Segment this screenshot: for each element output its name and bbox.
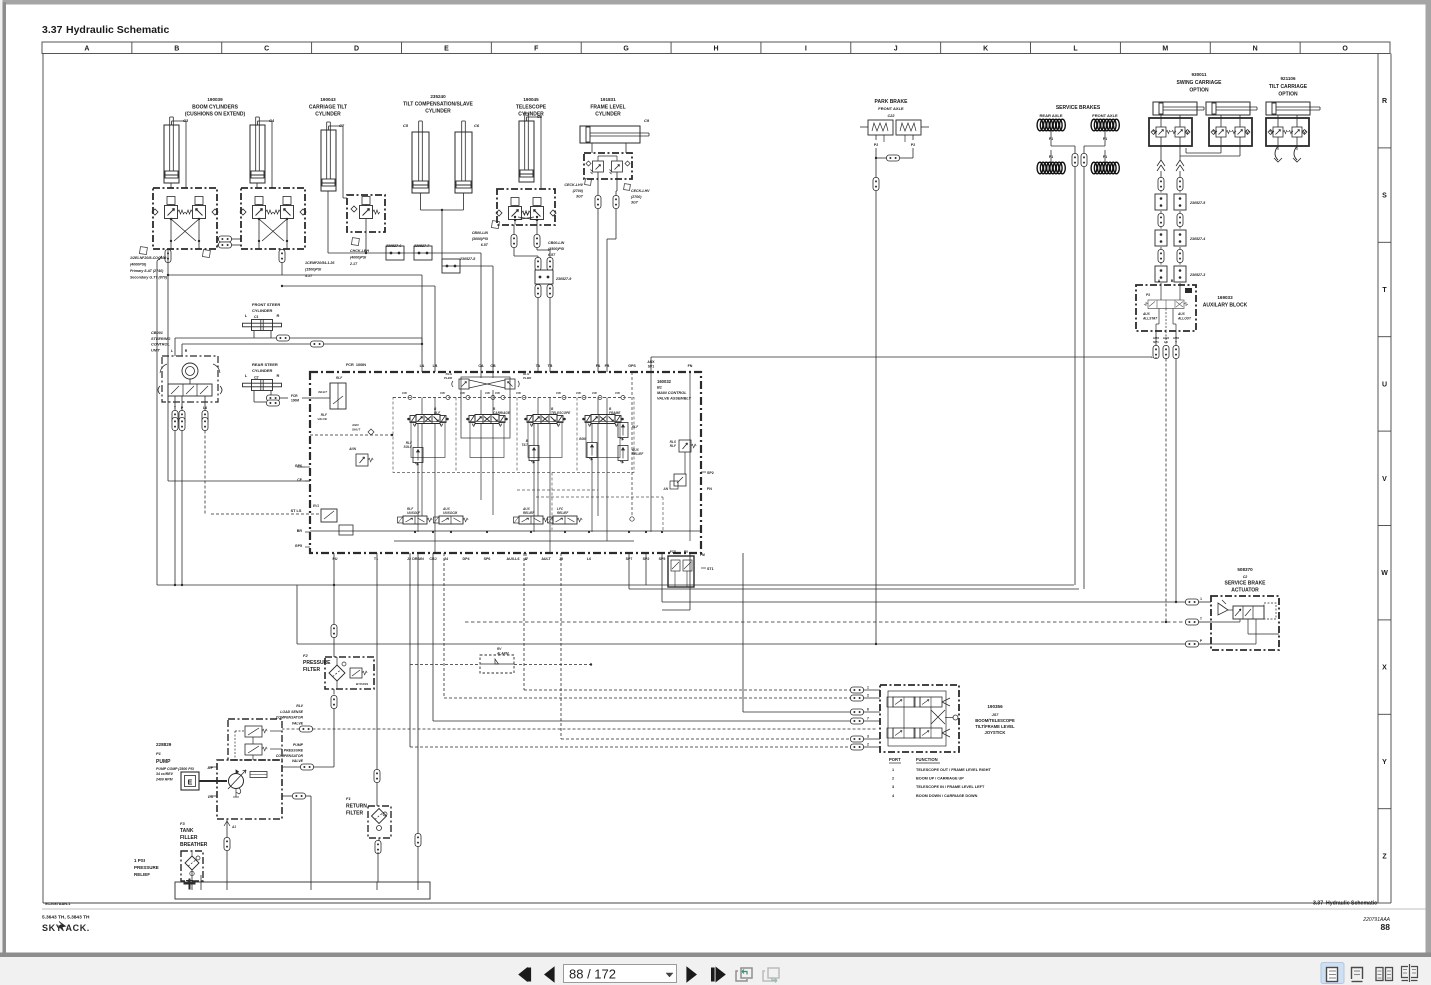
svg-text:BREATHER: BREATHER [180, 842, 208, 848]
svg-text:OPTION: OPTION [1278, 92, 1298, 98]
svg-text:T: T [1200, 617, 1202, 621]
svg-text:AUX: AUX [1177, 312, 1186, 316]
svg-text:PUMP: PUMP [156, 759, 171, 765]
svg-text:P2: P2 [911, 143, 915, 147]
svg-text:PRESSURE: PRESSURE [303, 660, 331, 666]
svg-text:FCR: FCR [291, 394, 298, 398]
svg-text:3GT: 3GT [631, 201, 639, 205]
svg-text:230527-9: 230527-9 [555, 277, 571, 281]
svg-text:L/S: L/S [208, 795, 214, 799]
svg-text:ST1: ST1 [707, 567, 714, 571]
svg-text:AN: AN [662, 487, 668, 491]
svg-text:PLBR: PLBR [523, 376, 532, 380]
svg-text:UNIT: UNIT [151, 348, 161, 352]
svg-text:JOYSTICK: JOYSTICK [985, 730, 1006, 735]
svg-text:1 PSI: 1 PSI [134, 858, 145, 863]
svg-text:(4000PSI): (4000PSI) [130, 263, 147, 267]
svg-text:CB00-LIN: CB00-LIN [548, 241, 565, 245]
svg-text:L6: L6 [203, 406, 207, 410]
svg-text:RELIEF: RELIEF [557, 511, 569, 515]
svg-text:BR: BR [297, 529, 303, 533]
svg-text:PRESSURE: PRESSURE [134, 865, 159, 870]
svg-text:I: I [805, 46, 807, 53]
svg-text:BOOM CYLINDERS: BOOM CYLINDERS [192, 105, 239, 111]
svg-text:3.37: 3.37 [42, 24, 63, 36]
svg-text:S: S [1382, 193, 1387, 200]
svg-text:FRONT AXLE: FRONT AXLE [1092, 113, 1118, 118]
svg-text:TELESCOPE: TELESCOPE [516, 105, 547, 111]
svg-text:230527-5: 230527-5 [1189, 201, 1206, 205]
svg-text:UNSOLF: UNSOLF [407, 511, 421, 515]
svg-text:A/P: A/P [207, 766, 213, 770]
svg-text:ACK.: ACK. [66, 923, 90, 933]
svg-text:REAR AXLE: REAR AXLE [1040, 113, 1063, 118]
svg-text:SP6: SP6 [484, 557, 491, 561]
svg-text:C5: C5 [403, 123, 409, 128]
svg-text:ACTUATOR: ACTUATOR [1231, 588, 1259, 594]
svg-text:1: 1 [867, 686, 869, 690]
svg-text:190356: 190356 [987, 704, 1003, 709]
svg-text:230527-8: 230527-8 [459, 257, 475, 261]
svg-text:ANN: ANN [348, 447, 357, 451]
svg-text:2400 RPM: 2400 RPM [155, 777, 173, 781]
svg-text:P1: P1 [156, 751, 162, 756]
svg-text:C22: C22 [888, 114, 896, 118]
svg-text:C9: C9 [644, 118, 650, 123]
svg-text:T: T [1175, 340, 1177, 344]
svg-text:5.3643 TH, 5.3843 TH: 5.3643 TH, 5.3843 TH [42, 915, 90, 921]
svg-text:2.1T: 2.1T [349, 262, 358, 266]
svg-text:6.5T: 6.5T [548, 253, 556, 257]
svg-text:N: N [1253, 46, 1258, 53]
svg-text:P2: P2 [874, 143, 878, 147]
svg-text:RLF: RLF [632, 425, 639, 429]
svg-text:CARRIAGE: CARRIAGE [493, 411, 511, 415]
svg-text:SP2: SP2 [707, 471, 714, 475]
svg-text:VALVE: VALVE [292, 759, 304, 763]
svg-text:SKY: SKY [42, 923, 62, 933]
svg-text:H: H [713, 46, 718, 53]
svg-text:CECK-LHV: CECK-LHV [631, 189, 650, 193]
svg-text:U: U [1382, 381, 1387, 388]
svg-text:ALARM: ALARM [496, 652, 509, 656]
svg-text:TILT/FRAME LEVEL: TILT/FRAME LEVEL [975, 724, 1015, 729]
svg-text:FILTER: FILTER [346, 811, 364, 817]
svg-text:A: A [84, 46, 89, 53]
svg-text:R: R [1382, 98, 1387, 105]
svg-text:RLV: RLV [296, 704, 303, 708]
svg-text:1: 1 [1200, 597, 1202, 601]
svg-text:AUX: AUX [647, 360, 655, 364]
svg-text:ANN: ANN [351, 423, 359, 427]
svg-text:190039: 190039 [207, 97, 223, 102]
svg-text:RELIEF: RELIEF [134, 872, 150, 877]
svg-text:2: 2 [867, 694, 869, 698]
svg-text:FUNCTION: FUNCTION [916, 757, 938, 762]
svg-text:FILLER: FILLER [180, 835, 198, 841]
svg-text:(2700): (2700) [573, 189, 584, 193]
svg-text:PRESSURE: PRESSURE [284, 748, 304, 752]
svg-text:PORT: PORT [889, 757, 901, 762]
svg-text:FILTER: FILTER [303, 667, 321, 673]
svg-text:TILT: TILT [522, 443, 530, 447]
svg-text:C7: C7 [339, 123, 345, 128]
svg-text:508370: 508370 [1237, 567, 1253, 572]
svg-text:TILT CARRIAGE: TILT CARRIAGE [1269, 84, 1308, 90]
svg-text:FRAME: FRAME [609, 411, 621, 415]
svg-text:6: 6 [867, 708, 869, 712]
svg-text:230527-4: 230527-4 [1189, 237, 1205, 241]
svg-text:F1: F1 [346, 796, 351, 801]
svg-text:6.5T: 6.5T [481, 243, 489, 247]
svg-text:RELIEF: RELIEF [632, 452, 644, 456]
svg-text:CECK-LHV: CECK-LHV [564, 183, 583, 187]
svg-text:235240: 235240 [430, 94, 446, 99]
svg-text:2: 2 [892, 777, 894, 781]
svg-text:O: O [1342, 46, 1348, 53]
svg-text:COMPENSATOR: COMPENSATOR [276, 754, 304, 758]
svg-text:SWING CARRIAGE: SWING CARRIAGE [1177, 80, 1223, 86]
svg-text:J: J [894, 46, 898, 53]
svg-text:AUX-L6: AUX-L6 [507, 557, 520, 561]
svg-text:PUMP: PUMP [293, 743, 304, 747]
svg-text:CYLINDER: CYLINDER [315, 112, 341, 118]
svg-text:RELIEF: RELIEF [523, 511, 535, 515]
svg-text:3: 3 [867, 735, 869, 739]
svg-text:CYLINDER: CYLINDER [252, 368, 273, 373]
svg-text:R: R [277, 373, 280, 378]
svg-text:CARRIAGE TILT: CARRIAGE TILT [309, 105, 347, 111]
svg-text:100M: 100M [291, 399, 299, 403]
svg-text:SC2087AAN-1: SC2087AAN-1 [45, 902, 70, 906]
svg-text:TILT COMPENSATION/SLAVE: TILT COMPENSATION/SLAVE [403, 102, 473, 108]
svg-text:P3: P3 [1146, 293, 1150, 297]
svg-text:VALVE: VALVE [292, 721, 304, 725]
svg-text:PUMP COMP (2500 PSI: PUMP COMP (2500 PSI [156, 767, 195, 771]
svg-text:C: C [264, 46, 269, 53]
svg-text:X: X [1382, 665, 1387, 672]
svg-text:D: D [354, 46, 359, 53]
svg-text:SP1: SP1 [1153, 340, 1159, 344]
svg-text:(CUSHIONS ON EXTEND): (CUSHIONS ON EXTEND) [185, 112, 246, 118]
svg-text:SP1: SP1 [648, 365, 655, 369]
svg-text:AUXILARY BLOCK: AUXILARY BLOCK [1203, 303, 1248, 309]
svg-text:L6: L6 [1164, 340, 1168, 344]
svg-text:230527-3: 230527-3 [1189, 273, 1205, 277]
svg-text:JS7: JS7 [992, 713, 1000, 717]
svg-text:INLET: INLET [318, 390, 328, 394]
svg-text:CB00-LIN: CB00-LIN [472, 231, 489, 235]
svg-text:3: 3 [892, 785, 894, 789]
svg-text:FRONT STEER: FRONT STEER [252, 302, 280, 307]
svg-text:G: G [623, 46, 629, 53]
svg-text:SERVICE BRAKE: SERVICE BRAKE [1224, 581, 1266, 587]
svg-text:C1: C1 [254, 315, 259, 319]
svg-text:F3: F3 [180, 821, 185, 826]
svg-text:190045: 190045 [523, 97, 539, 102]
svg-text:1CEMF20/54-1.26: 1CEMF20/54-1.26 [305, 261, 335, 265]
svg-text:(2700): (2700) [631, 195, 642, 199]
svg-text:(1500)PSI: (1500)PSI [305, 268, 322, 272]
svg-text:CYLINDER: CYLINDER [595, 112, 621, 118]
svg-text:A1: A1 [231, 825, 236, 829]
svg-text:230527-6: 230527-6 [385, 244, 402, 248]
svg-text:VALVE ASSEMBLY: VALVE ASSEMBLY [657, 397, 691, 401]
svg-text:FRONT AXLE: FRONT AXLE [878, 106, 904, 111]
svg-text:TELESCOPE IN / FRAME LEVEL LEF: TELESCOPE IN / FRAME LEVEL LEFT [916, 785, 985, 789]
svg-text:CONTROL: CONTROL [151, 343, 170, 347]
svg-text:C8: C8 [537, 114, 543, 119]
svg-text:B0M: B0M [579, 437, 586, 441]
svg-text:V: V [1382, 476, 1387, 483]
svg-text:T: T [1382, 287, 1387, 294]
svg-text:BOOM/TELESCOPE: BOOM/TELESCOPE [975, 718, 1015, 723]
svg-text:E: E [444, 46, 449, 53]
svg-text:TELESCOPE OUT / FRAME LEVEL RI: TELESCOPE OUT / FRAME LEVEL RIGHT [916, 768, 991, 772]
svg-text:7: 7 [867, 717, 869, 721]
svg-text:Z: Z [1382, 853, 1387, 860]
svg-text:Secondary G.TT (870): Secondary G.TT (870) [130, 276, 168, 280]
svg-text:PLBR: PLBR [444, 376, 453, 380]
svg-text:EV1: EV1 [313, 504, 319, 508]
svg-text:190043: 190043 [320, 97, 336, 102]
svg-text:AULT: AULT [541, 557, 551, 561]
svg-text:UNSOCM: UNSOCM [443, 511, 458, 515]
svg-text:BOOM DOWN / CARRIAGE DOWN: BOOM DOWN / CARRIAGE DOWN [916, 794, 978, 798]
svg-text:CYLINDER: CYLINDER [252, 308, 273, 313]
svg-text:C2: C2 [1243, 575, 1248, 579]
svg-text:169033: 169033 [1217, 295, 1233, 300]
svg-text:DP4: DP4 [463, 557, 470, 561]
svg-text:88: 88 [1381, 922, 1391, 932]
svg-text:TANK: TANK [180, 828, 194, 834]
svg-text:RLF: RLF [336, 376, 343, 380]
svg-text:Primary 8.AT (2740): Primary 8.AT (2740) [130, 269, 164, 273]
svg-text:TELESCOPE: TELESCOPE [551, 411, 571, 415]
svg-text:FCR 100IN: FCR 100IN [346, 363, 366, 367]
svg-text:FN: FN [688, 364, 693, 368]
svg-text:1: 1 [892, 768, 894, 772]
svg-text:3GT: 3GT [576, 195, 584, 199]
svg-text:F: F [534, 46, 539, 53]
svg-text:B1: B1 [657, 386, 662, 390]
svg-text:C6: C6 [474, 123, 480, 128]
svg-text:AUX: AUX [1142, 312, 1151, 316]
svg-text:W: W [1381, 570, 1388, 577]
svg-text:ALLOUT: ALLOUT [1177, 317, 1192, 321]
svg-text:F2: F2 [303, 653, 308, 658]
svg-text:K: K [983, 46, 988, 53]
svg-text:MAIN CONTROL: MAIN CONTROL [657, 391, 687, 395]
svg-text:88 / 172: 88 / 172 [569, 967, 616, 982]
svg-text:FCS: FCS [670, 550, 676, 554]
svg-text:B: B [174, 46, 179, 53]
svg-text:160032: 160032 [657, 379, 672, 384]
svg-text:230527-7: 230527-7 [413, 244, 430, 248]
svg-text:PARK BRAKE: PARK BRAKE [875, 99, 909, 105]
svg-text:SHUT: SHUT [352, 428, 361, 432]
svg-text:C2: C2 [254, 376, 259, 380]
svg-text:2: 2 [867, 743, 869, 747]
svg-text:Y: Y [1382, 759, 1387, 766]
svg-text:RLF: RLF [670, 444, 677, 448]
svg-text:GPS: GPS [628, 364, 636, 368]
svg-text:GP5: GP5 [295, 544, 302, 548]
svg-text:SOLF: SOLF [404, 445, 414, 449]
svg-text:E: E [188, 780, 193, 787]
svg-text:J4: J4 [444, 557, 448, 561]
svg-text:T1: T1 [374, 557, 378, 561]
svg-text:R: R [277, 313, 280, 318]
svg-text:921106: 921106 [1280, 76, 1296, 81]
svg-text:LOAD SENSE: LOAD SENSE [280, 710, 303, 714]
svg-text:228829: 228829 [156, 742, 172, 747]
svg-text:191831: 191831 [600, 97, 616, 102]
svg-text:M: M [1162, 46, 1168, 53]
svg-text:STEERING: STEERING [151, 337, 170, 341]
svg-text:34 cc/REV: 34 cc/REV [156, 772, 174, 776]
svg-text:FRAME LEVEL: FRAME LEVEL [590, 105, 625, 111]
svg-text:3.37 Hydraulic Schematic: 3.37 Hydraulic Schematic [1313, 901, 1377, 907]
svg-text:VALVE: VALVE [317, 417, 328, 421]
svg-text:SERVICE BRAKES: SERVICE BRAKES [1056, 105, 1101, 111]
svg-text:ST LS: ST LS [291, 509, 302, 513]
svg-text:Hydraulic Schematic: Hydraulic Schematic [66, 24, 169, 36]
svg-text:(4500)PSI: (4500)PSI [548, 247, 565, 251]
svg-text:OPTION: OPTION [1189, 88, 1209, 94]
svg-text:930011: 930011 [1191, 72, 1207, 77]
svg-text:BOOM UP / CARRIAGE UP: BOOM UP / CARRIAGE UP [916, 777, 964, 781]
svg-text:CYLINDER: CYLINDER [425, 109, 451, 115]
svg-text:(4000)PSI: (4000)PSI [350, 256, 367, 260]
svg-text:FN: FN [707, 487, 712, 491]
svg-text:PM: PM [700, 553, 705, 557]
svg-text:L6: L6 [587, 557, 591, 561]
svg-text:L: L [1073, 46, 1078, 53]
svg-text:(3000)PSI: (3000)PSI [472, 237, 489, 241]
svg-text:REAR STEER: REAR STEER [252, 362, 278, 367]
svg-text:BYPASS: BYPASS [356, 682, 368, 686]
svg-text:ALLSTAT: ALLSTAT [1142, 317, 1158, 321]
svg-text:RETURN: RETURN [346, 804, 367, 810]
svg-text:PU: PU [333, 557, 338, 561]
